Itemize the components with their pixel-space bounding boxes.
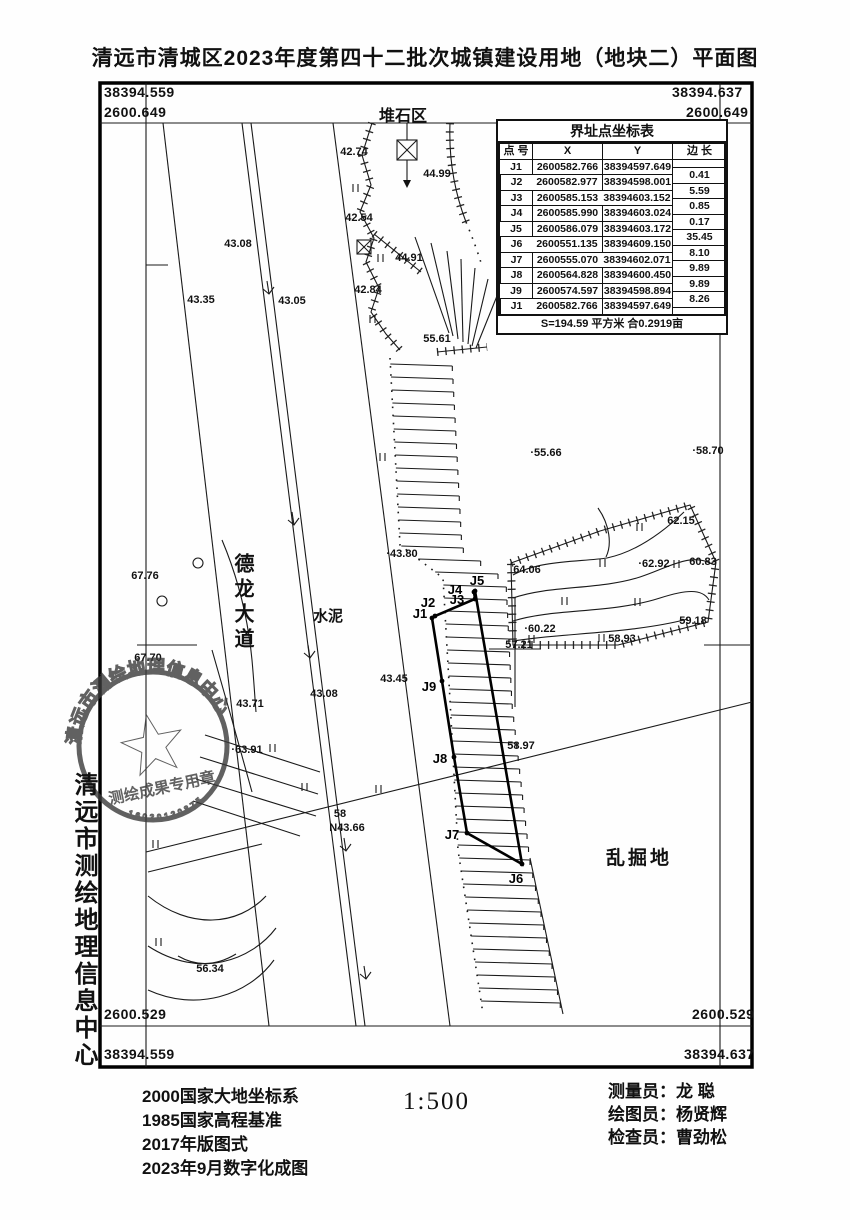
corner-coord-bottom-right-e: 38394.637: [684, 1046, 755, 1062]
region-label-cement: 水泥: [313, 605, 343, 626]
side-length-value: 0.17: [673, 215, 726, 229]
slope-hatch-line: [463, 884, 535, 886]
slope-hatch-line: [392, 390, 454, 392]
slope-hatch-line: [465, 897, 538, 899]
spot-elevation-label: 44.99: [423, 168, 451, 180]
spot-elevation-label: ·63.91: [231, 744, 262, 756]
boundary-point-marker: [520, 862, 525, 867]
spot-elevation-label: 58.97: [507, 740, 535, 752]
table-cell-x: 2600582.766: [532, 298, 602, 314]
slope-hatch-line: [469, 923, 544, 925]
grass-symbol: [600, 559, 605, 567]
side-length-divider: [673, 307, 726, 308]
table-cell-x: 2600555.070: [532, 252, 602, 268]
slope-hatch-line: [471, 936, 546, 938]
slope-hatch-line: [393, 416, 455, 418]
slope-hatch-line: [391, 377, 453, 379]
flow-arrow-symbols: [263, 281, 371, 979]
credits-block: 测量员：龙 聪 绘图员：杨贤辉 检查员：曹劲松: [608, 1080, 727, 1149]
slope-fan-lines: [415, 237, 499, 348]
spot-elevation-label: 43.45: [380, 673, 408, 685]
slope-hatch-line: [399, 520, 461, 522]
spot-elevation-label: 42.84: [354, 284, 382, 296]
slope-hatch-line: [456, 806, 524, 808]
slope-hatch-line: [467, 910, 541, 912]
table-cell-y: 38394602.071: [602, 252, 672, 268]
spot-elevation-label: 55.61: [423, 333, 451, 345]
grass-symbol: [353, 184, 358, 192]
spot-elevation-label: ·62.92: [638, 558, 669, 570]
spot-elevation-label: 67.76: [131, 570, 159, 582]
table-cell-y: 38394598.894: [602, 283, 672, 299]
side-length-column: 0.415.590.850.1735.458.109.899.898.26: [672, 159, 726, 314]
quarry-symbol: [397, 123, 417, 188]
corner-coord-top-right-n: 2600.649: [686, 104, 748, 120]
table-cell-p: J5: [500, 221, 532, 237]
region-label-excavated: 乱掘地: [606, 843, 672, 870]
spot-elevation-label: 60.83: [689, 556, 717, 568]
slope-hatch-line: [447, 650, 509, 652]
note-line: 2017年版图式: [142, 1133, 308, 1157]
table-header-point: 点 号: [500, 143, 532, 159]
flow-arrow-icon: [304, 645, 315, 658]
boundary-point-marker: [473, 589, 478, 594]
slope-hatch-line: [479, 988, 557, 990]
table-cell-x: 2600582.977: [532, 174, 602, 190]
table-cell-p: J8: [500, 267, 532, 283]
table-cell-x: 2600585.153: [532, 190, 602, 206]
table-title: 界址点坐标表: [498, 121, 726, 141]
table-cell-p: J3: [500, 190, 532, 206]
slope-hatch-line: [475, 962, 552, 964]
spot-elevation-label: 58: [334, 808, 346, 820]
table-cell-p: J7: [500, 252, 532, 268]
grass-symbol: [599, 634, 604, 642]
spot-elevation-label: N43.66: [329, 822, 364, 834]
slope-hatch-line: [454, 780, 521, 782]
table-cell-y: 38394603.152: [602, 190, 672, 206]
spot-elevation-label: ·43.80: [386, 548, 417, 560]
slope-hatch-line: [397, 481, 459, 483]
slope-hatch-line: [451, 715, 514, 717]
flow-arrow-icon: [288, 512, 299, 525]
grass-symbol: [270, 744, 275, 752]
table-cell-y: 38394603.024: [602, 205, 672, 221]
spot-elevation-label: 43.35: [187, 294, 215, 306]
boundary-point-marker: [433, 614, 438, 619]
boundary-point-label: J6: [509, 871, 523, 886]
spot-elevation-label: ·58.70: [692, 445, 723, 457]
slope-hatch-line: [435, 572, 498, 574]
table-cell-p: J4: [500, 205, 532, 221]
slope-hatch-line: [398, 507, 460, 509]
boundary-point-marker: [465, 831, 470, 836]
slope-hatch-line: [450, 702, 512, 704]
side-length-value: 8.26: [673, 292, 726, 306]
side-length-value: 0.85: [673, 199, 726, 213]
table-cell-x: 2600574.597: [532, 283, 602, 299]
note-line: 2000国家大地坐标系: [142, 1085, 308, 1109]
spot-elevation-label: 64.06: [513, 564, 541, 576]
corner-coord-top-left-n: 2600.649: [104, 104, 166, 120]
slope-hatch-line: [445, 611, 508, 613]
slope-hatch-line: [449, 676, 511, 678]
spot-elevation-label: 42.54: [345, 212, 373, 224]
corner-coord-top-left-e: 38394.559: [104, 84, 175, 100]
credit-checker: 检查员：曹劲松: [608, 1126, 727, 1149]
grass-symbol: [153, 840, 158, 848]
boundary-point-label: J7: [445, 827, 459, 842]
grass-symbol: [380, 453, 385, 461]
slope-hatch-line: [449, 689, 511, 691]
slope-hatch-line: [481, 1001, 560, 1003]
boundary-point-marker: [440, 679, 445, 684]
slope-hatch-line: [394, 429, 456, 431]
spot-elevation-label: 62.15: [667, 515, 695, 527]
seal-star: [117, 708, 189, 777]
boundary-point-label: J2: [421, 595, 435, 610]
boundary-point-marker: [452, 755, 457, 760]
side-length-value: 0.41: [673, 168, 726, 182]
slope-hatch-line: [446, 637, 509, 639]
table-cell-p: J9: [500, 283, 532, 299]
grass-symbol: [637, 523, 642, 531]
seal-ring-text: 清远市测绘地理信息中心: [49, 640, 235, 750]
region-label-pile-area: 堆石区: [379, 102, 427, 126]
spot-elevation-label: ·60.22: [524, 623, 555, 635]
slope-hatch-line: [390, 364, 452, 366]
table-cell-y: 38394609.150: [602, 236, 672, 252]
grass-symbol: [156, 938, 161, 946]
spot-elevation-label: 58.93: [608, 633, 636, 645]
table-area-note: S=194.59 平方米 合0.2919亩: [498, 315, 726, 333]
slope-hatch-line: [451, 728, 515, 730]
corner-coord-bottom-right-n: 2600.529: [692, 1006, 754, 1022]
flow-arrow-icon: [360, 966, 371, 979]
boundary-point-label: J9: [422, 679, 436, 694]
slope-hatch-line: [397, 494, 459, 496]
table-cell-p: J1: [500, 159, 532, 175]
table-cell-p: J1: [500, 298, 532, 314]
slope-hatch-line: [399, 533, 461, 535]
grass-symbol: [376, 785, 381, 793]
slope-hatch-line: [395, 455, 457, 457]
spot-elevation-label: 43.05: [278, 295, 306, 307]
boundary-point-marker: [473, 597, 478, 602]
table-cell-y: 38394597.649: [602, 159, 672, 175]
map-scale: 1:500: [403, 1088, 470, 1116]
parcel-outline: [432, 591, 522, 864]
boundary-point-label: J8: [433, 751, 447, 766]
side-length-value: 5.59: [673, 184, 726, 198]
side-length-value: 8.10: [673, 246, 726, 260]
spot-elevation-label: 44.91: [395, 252, 423, 264]
spot-elevation-label: 56.34: [196, 963, 224, 975]
table-cell-y: 38394600.450: [602, 267, 672, 283]
slope-hatch-line: [392, 403, 454, 405]
table-header-y: Y: [602, 143, 672, 159]
datum-notes: 2000国家大地坐标系 1985国家高程基准 2017年版图式 2023年9月数…: [142, 1085, 308, 1181]
table-header-length: 边 长: [672, 143, 726, 159]
gully-slope: [360, 123, 499, 352]
agency-vertical-caption: 清远市测绘地理信息中心: [66, 772, 101, 1069]
table-cell-x: 2600564.828: [532, 267, 602, 283]
page-title: 清远市清城区2023年度第四十二批次城镇建设用地（地块二）平面图: [0, 42, 850, 72]
spot-elevation-label: 43.08: [310, 688, 338, 700]
grass-symbol: [378, 254, 383, 262]
boundary-point-label: J5: [470, 573, 484, 588]
spot-elevation-label: 59.18: [679, 615, 707, 627]
side-length-value: 9.89: [673, 277, 726, 291]
region-label-road-name: 德龙大道: [228, 553, 257, 653]
credit-surveyor: 测量员：龙 聪: [608, 1080, 727, 1103]
spot-elevation-label: 43.71: [236, 698, 264, 710]
boundary-point-label: J4: [448, 582, 463, 597]
table-cell-y: 38394603.172: [602, 221, 672, 237]
table-cell-p: J2: [500, 174, 532, 190]
slope-hatch-line: [394, 442, 456, 444]
table-cell-x: 2600582.766: [532, 159, 602, 175]
grass-symbol: [635, 598, 640, 606]
spot-elevation-label: ·55.66: [530, 447, 561, 459]
table-cell-y: 38394598.001: [602, 174, 672, 190]
spot-elevation-label: 42.74: [340, 146, 368, 158]
slope-hatch-line: [448, 663, 510, 665]
note-line: 2023年9月数字化成图: [142, 1157, 308, 1181]
table-cell-y: 38394597.649: [602, 298, 672, 314]
grass-symbol: [562, 597, 567, 605]
boundary-coordinate-table: 界址点坐标表 点 号 X Y 边 长 J12600582.76638394597…: [496, 119, 728, 335]
corner-coord-top-right-e: 38394.637: [672, 84, 743, 100]
slope-hatch-line: [477, 975, 555, 977]
table-cell-x: 2600586.079: [532, 221, 602, 237]
table-cell-x: 2600551.135: [532, 236, 602, 252]
side-length-value: 35.45: [673, 230, 726, 244]
note-line: 1985国家高程基准: [142, 1109, 308, 1133]
table-cell-p: J6: [500, 236, 532, 252]
slope-hatch-line: [396, 468, 458, 470]
slope-hatch-line: [446, 624, 509, 626]
table-header-x: X: [532, 143, 602, 159]
side-length-value: 9.89: [673, 261, 726, 275]
slope-band-right-edge: [530, 858, 563, 1014]
corner-coord-bottom-left-e: 38394.559: [104, 1046, 175, 1062]
slope-hatch-line: [473, 949, 549, 951]
credit-drafter: 绘图员：杨贤辉: [608, 1103, 727, 1126]
table-cell-x: 2600585.990: [532, 205, 602, 221]
spot-elevation-label: 43.08: [224, 238, 252, 250]
slope-hatch-line: [453, 754, 518, 756]
slope-hatch-line: [418, 559, 480, 561]
corner-coord-bottom-left-n: 2600.529: [104, 1006, 166, 1022]
slope-hatch-line: [455, 793, 523, 795]
survey-plan-page: J1J2J3J4J5J6J7J8J9 42.7444.9942.5444.914…: [0, 0, 850, 1220]
slope-hatch-line: [459, 858, 530, 860]
